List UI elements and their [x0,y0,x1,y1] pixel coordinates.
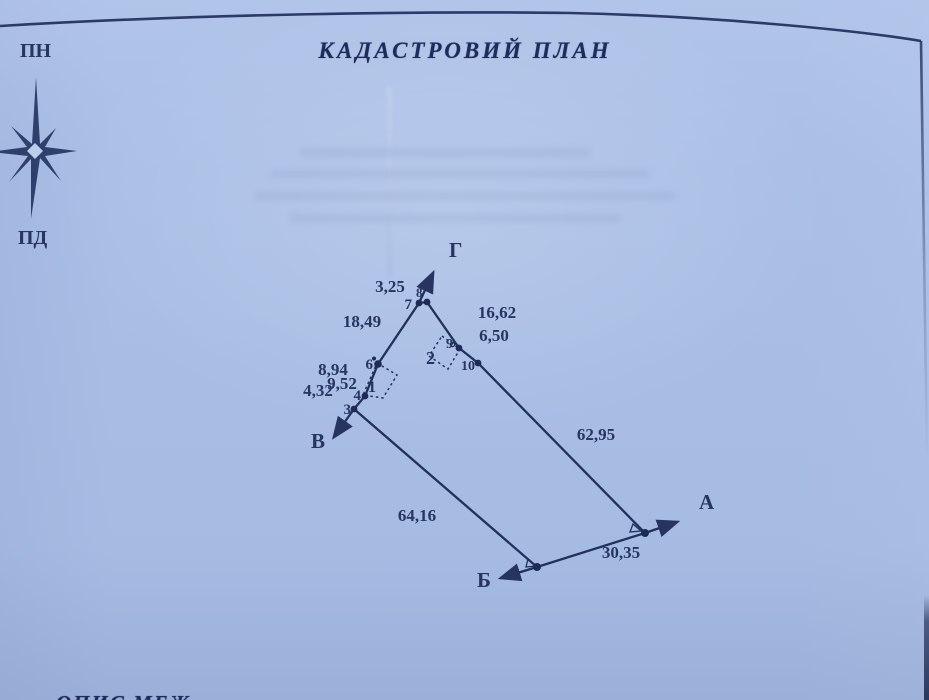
survey-point-dot [351,406,358,413]
length-label: 3,25 [375,277,405,296]
point-label-7: 7 [405,297,413,313]
direction-arrow-b [501,567,537,578]
survey-point-dot [374,360,382,368]
length-label: 64,16 [398,506,436,525]
compass-south-label: ПД [18,227,48,249]
corner-label-v: В [311,429,325,453]
length-label: 18,49 [343,312,381,331]
structure-label-1: 1 [368,379,376,396]
survey-point-dot [424,299,431,306]
point-label-3: 3 [344,402,352,418]
survey-point-dot [475,360,482,367]
length-label: 16,62 [478,303,516,322]
corner-label-b: Б [477,568,491,592]
boundary-line-southwest [354,409,537,567]
sheet-top-border [0,12,921,41]
point-label-10: 10 [461,359,475,374]
length-label: 30,35 [602,543,640,562]
compass-rose-icon [0,77,77,219]
survey-point-dot [533,563,541,571]
survey-point-dot [416,300,423,307]
cadastral-plan-drawing: ПН ПД Г В А [0,0,929,700]
paper-edge-shadow [924,595,929,700]
compass-north-label: ПН [20,40,52,62]
length-label: 4,32 [303,381,333,400]
length-label: 62,95 [577,425,615,444]
point-label-9: 9 [446,337,453,352]
boundary-line-east [427,302,645,533]
survey-point-dot [456,345,463,352]
sheet-right-border [921,41,927,460]
corner-label-g: Г [449,238,462,262]
point-label-8: 8 [416,285,423,300]
point-label-6: 6 [366,357,374,373]
footer-partial-text: ОПИС МЕЖ [56,691,456,700]
survey-point-dot [641,529,649,537]
structure-label-2: 2 [426,348,435,368]
length-label: 6,50 [479,326,509,345]
corner-label-a: А [699,490,715,514]
direction-arrow-a [645,522,677,533]
